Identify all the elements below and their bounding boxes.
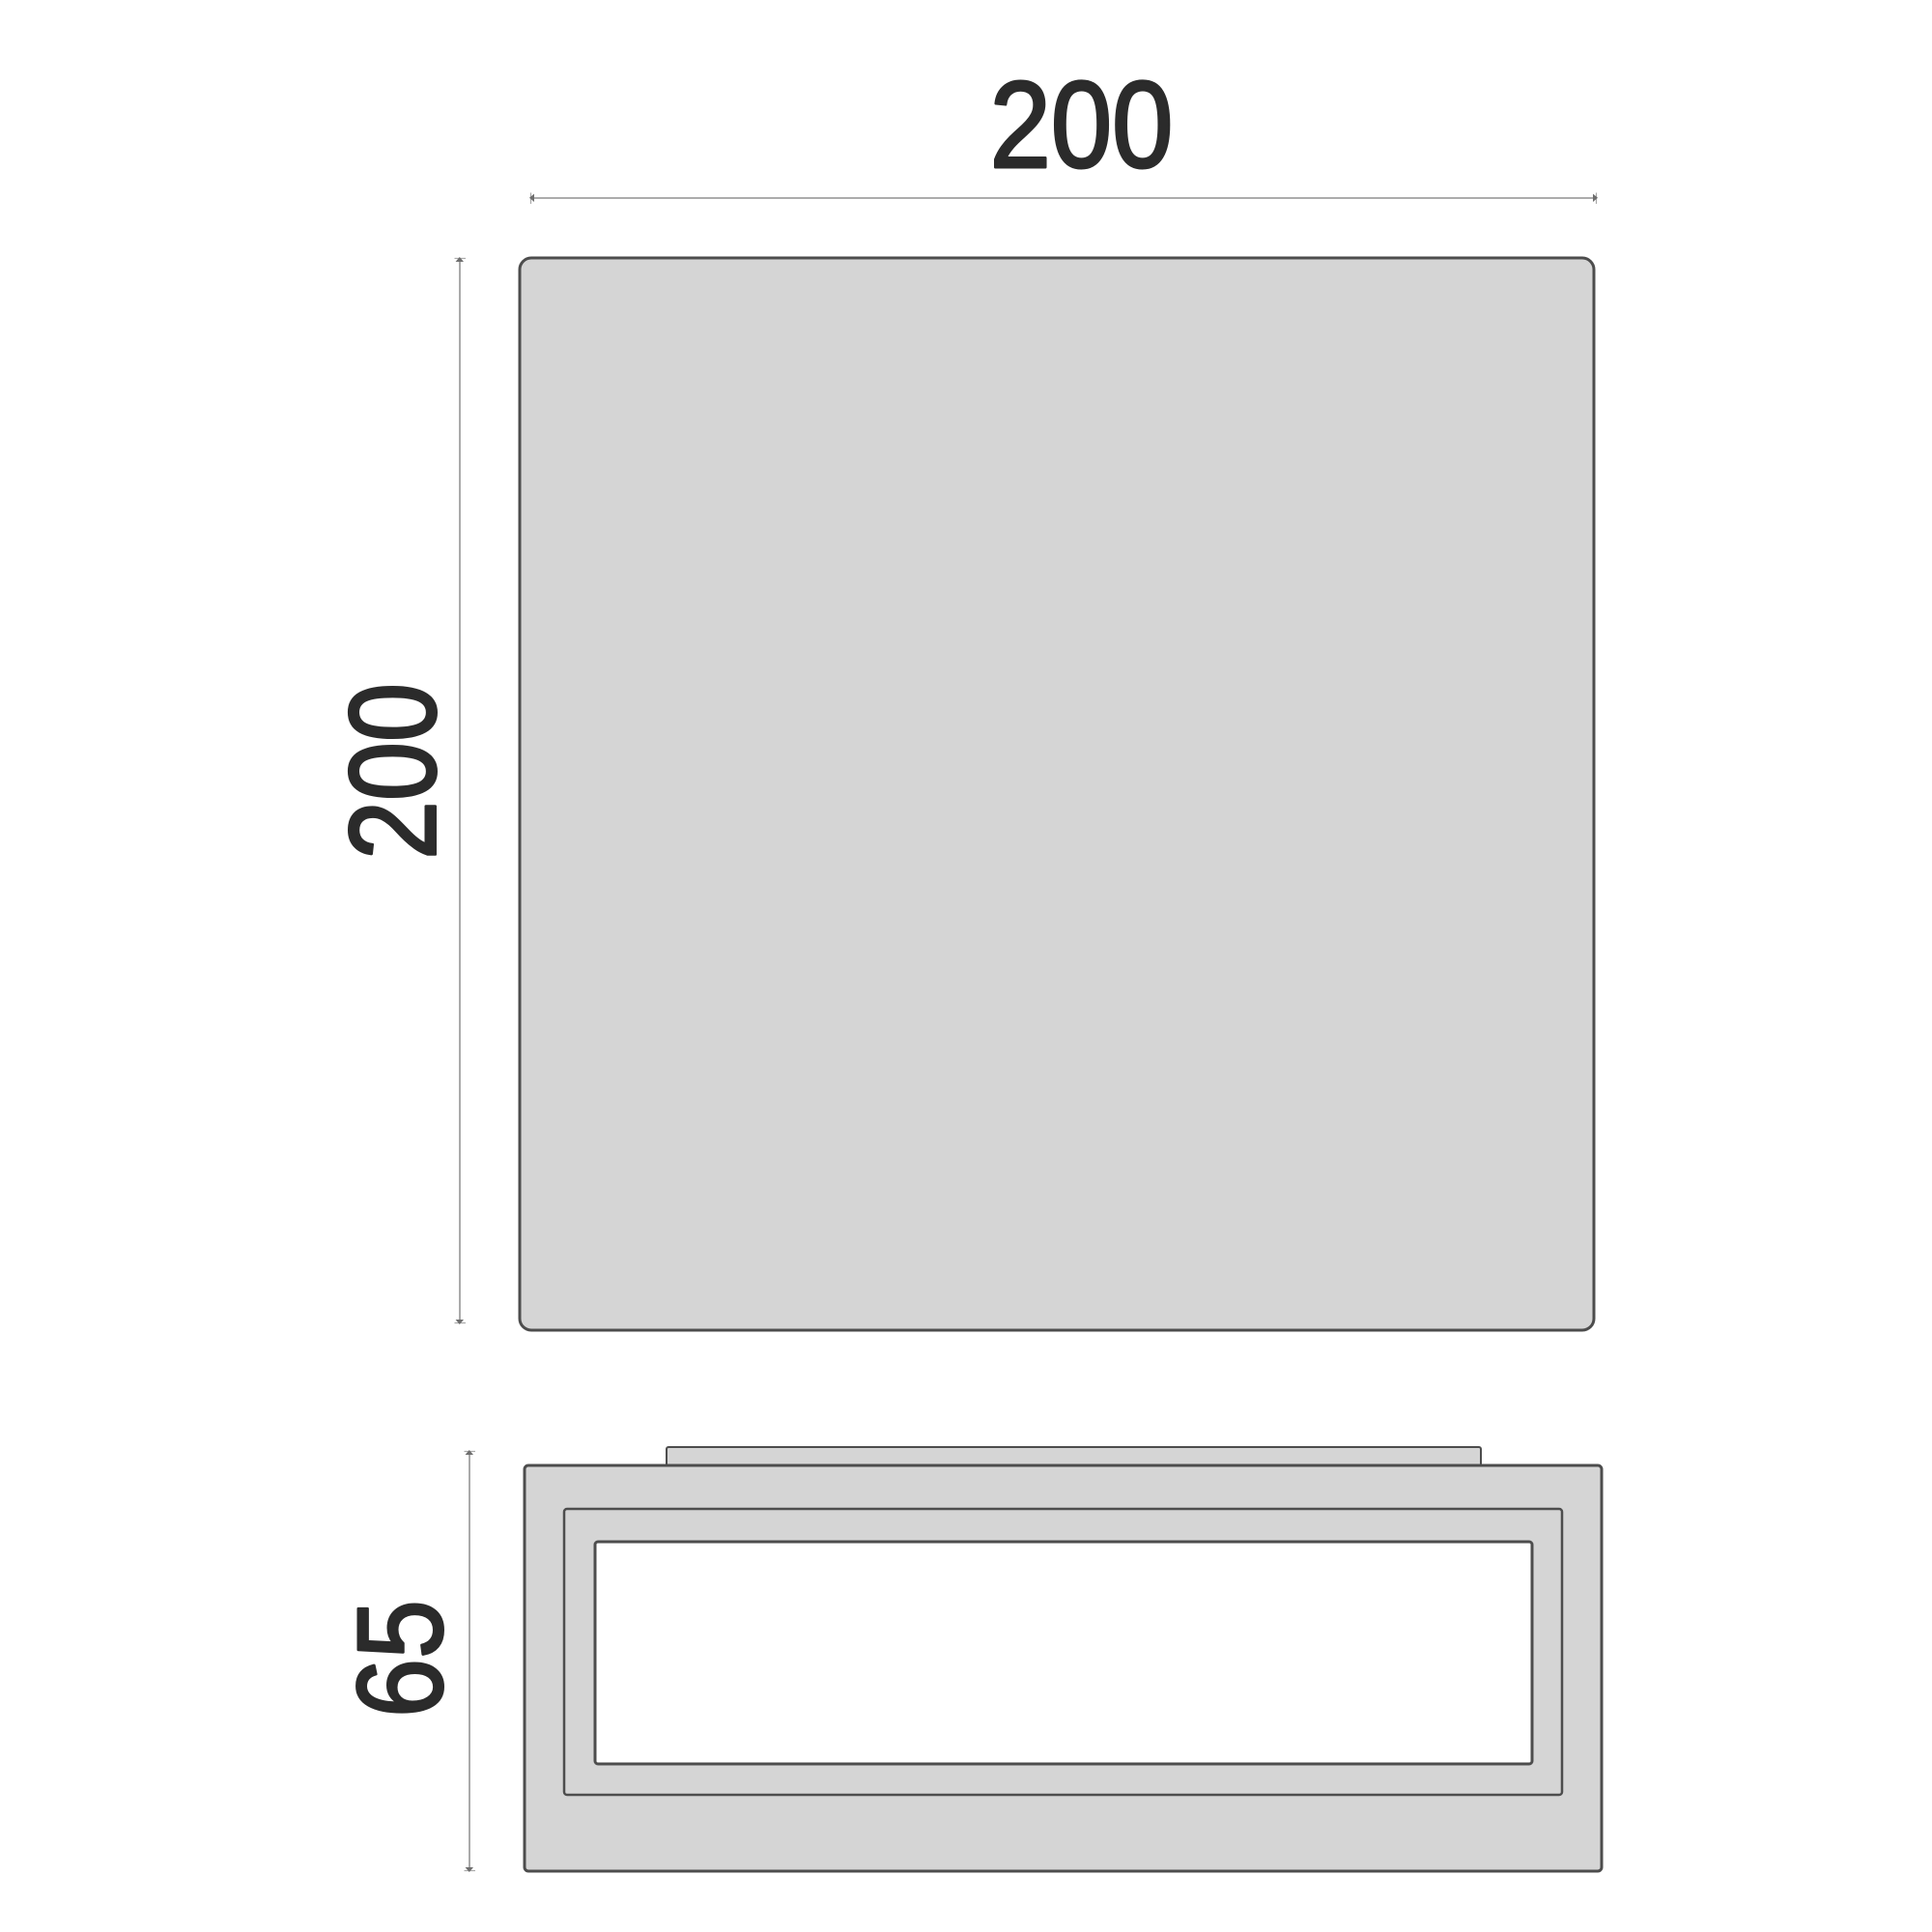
svg-text:200: 200 [990,56,1174,193]
svg-text:200: 200 [326,683,462,860]
svg-text:65: 65 [333,1600,468,1718]
